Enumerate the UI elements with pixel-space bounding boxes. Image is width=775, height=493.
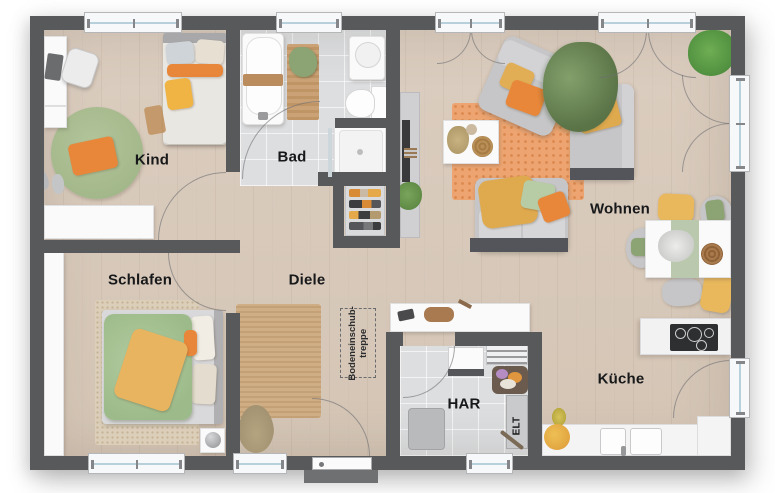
window-cap (179, 460, 182, 469)
books (404, 148, 417, 158)
wall-segment (386, 332, 400, 456)
wardrobe (44, 205, 154, 239)
room-label-diele: Diele (289, 272, 326, 289)
wooden-tray (424, 307, 454, 322)
desk-cabinet (44, 106, 67, 128)
window-cap (91, 460, 94, 469)
dining-chair-yellow (657, 193, 694, 223)
pillow (191, 363, 217, 404)
shoes-row (349, 200, 381, 208)
pillow (165, 41, 195, 66)
window (233, 453, 287, 474)
bedroom-wardrobe (44, 252, 64, 456)
window (466, 453, 513, 474)
window-cap (469, 460, 472, 469)
kitchen-door (729, 358, 750, 418)
window-mullion (470, 19, 472, 28)
window-cap (438, 19, 441, 28)
shoes-row (349, 222, 381, 230)
entrance-door (312, 457, 372, 470)
loft-ladder-hatch: Bodeneinschub- treppe (340, 308, 376, 378)
loft-ladder-label-line2: treppe (358, 306, 369, 380)
window (84, 12, 182, 33)
shoes-row (349, 189, 381, 197)
washing-machine-door (448, 369, 484, 376)
window-cap (336, 19, 339, 28)
laundry-hamper (408, 408, 445, 450)
burner (696, 340, 707, 351)
window (598, 12, 696, 33)
burner (675, 328, 686, 339)
window-cap (601, 19, 604, 28)
kitchen-faucet (621, 446, 626, 456)
pillow (195, 39, 225, 65)
wall-segment (335, 118, 386, 128)
french-door (729, 75, 750, 172)
window-cap (736, 78, 745, 81)
wall-segment (30, 16, 44, 470)
wall-segment (44, 240, 240, 253)
shoe-rack (345, 184, 385, 236)
bath-caddy (243, 74, 283, 86)
window-cap (736, 361, 745, 364)
window (276, 12, 342, 33)
cooktop (670, 324, 718, 351)
wall-segment (226, 30, 240, 172)
sofa-armrest (622, 84, 634, 180)
kitchen-counter-corner (697, 416, 731, 456)
window-glass (739, 362, 741, 414)
loft-ladder-label: Bodeneinschub- treppe (347, 306, 370, 380)
window-glass (470, 463, 509, 465)
shower-drain (357, 149, 363, 155)
window-glass (237, 463, 283, 465)
table-lamp (205, 432, 221, 448)
snack-bowl (701, 243, 723, 265)
toilet-bowl (345, 89, 375, 118)
room-label-kueche: Küche (598, 371, 645, 388)
room-label-bad: Bad (278, 149, 307, 166)
window-cap (499, 19, 502, 28)
window-mullion (647, 19, 649, 28)
woven-bowl (472, 136, 493, 157)
window-cap (176, 19, 179, 28)
shoes-row (349, 211, 381, 219)
hallway-jute-rug (236, 304, 321, 418)
green-towels (289, 47, 317, 77)
floor-plan: Bodeneinschub- treppe ELT (0, 0, 775, 493)
window (435, 12, 505, 33)
sofa-base (470, 238, 568, 252)
window (88, 453, 185, 474)
room-label-har: HAR (447, 396, 480, 413)
wall-segment (386, 30, 400, 248)
window-mullion (736, 123, 745, 125)
fruit-bowl (544, 424, 570, 450)
yellow-blanket (164, 77, 194, 110)
window-cap (87, 19, 90, 28)
window-cap (279, 19, 282, 28)
entrance-step (304, 470, 378, 483)
wall-segment (226, 313, 240, 456)
laundry-item (496, 369, 508, 379)
window-cap (507, 460, 510, 469)
wall-segment (386, 332, 403, 346)
room-label-schlafen: Schlafen (108, 272, 172, 289)
laundry-basket (492, 366, 528, 394)
electrical-panel-label: ELT (512, 417, 523, 436)
door-handle (319, 462, 324, 467)
loft-ladder-label-line1: Bodeneinschub- (347, 306, 358, 380)
sink-basin (630, 428, 662, 455)
dried-grass-plant (238, 405, 274, 453)
wall-segment (528, 332, 542, 456)
window-cap (236, 460, 239, 469)
washbasin-bowl (355, 42, 381, 68)
room-label-kind: Kind (135, 152, 169, 169)
burner (704, 328, 714, 338)
vase (466, 124, 477, 135)
shower-glass (328, 128, 332, 177)
window-cap (690, 19, 693, 28)
room-label-wohnen: Wohnen (590, 201, 650, 218)
window-mullion (136, 460, 138, 469)
window-glass (280, 22, 338, 24)
window-cap (736, 166, 745, 169)
window-mullion (133, 19, 135, 28)
sofa-base (570, 168, 634, 180)
window-cap (281, 460, 284, 469)
window-cap (736, 412, 745, 415)
bath-faucet (258, 112, 268, 120)
laundry-item (500, 379, 516, 389)
